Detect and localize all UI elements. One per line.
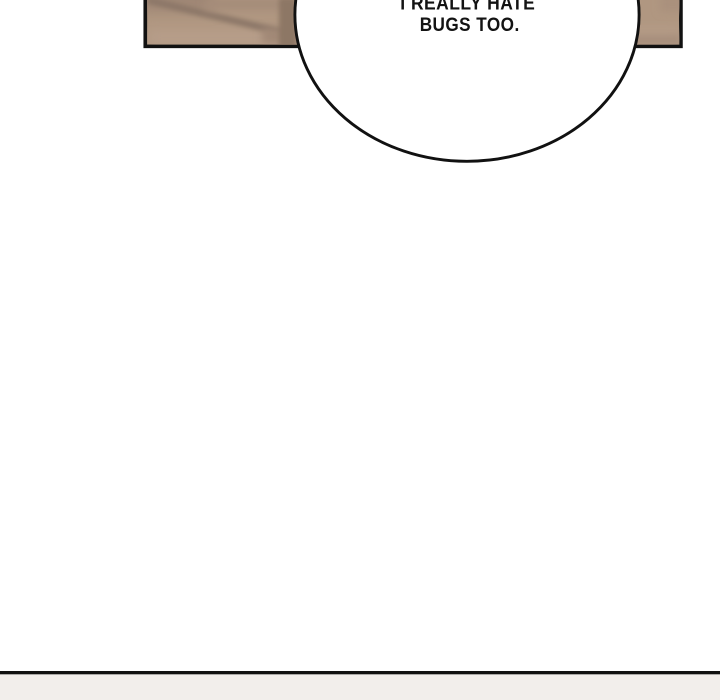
svg-text:BUGS TOO.: BUGS TOO. <box>420 15 520 36</box>
svg-text:I REALLY HATE: I REALLY HATE <box>400 0 535 15</box>
